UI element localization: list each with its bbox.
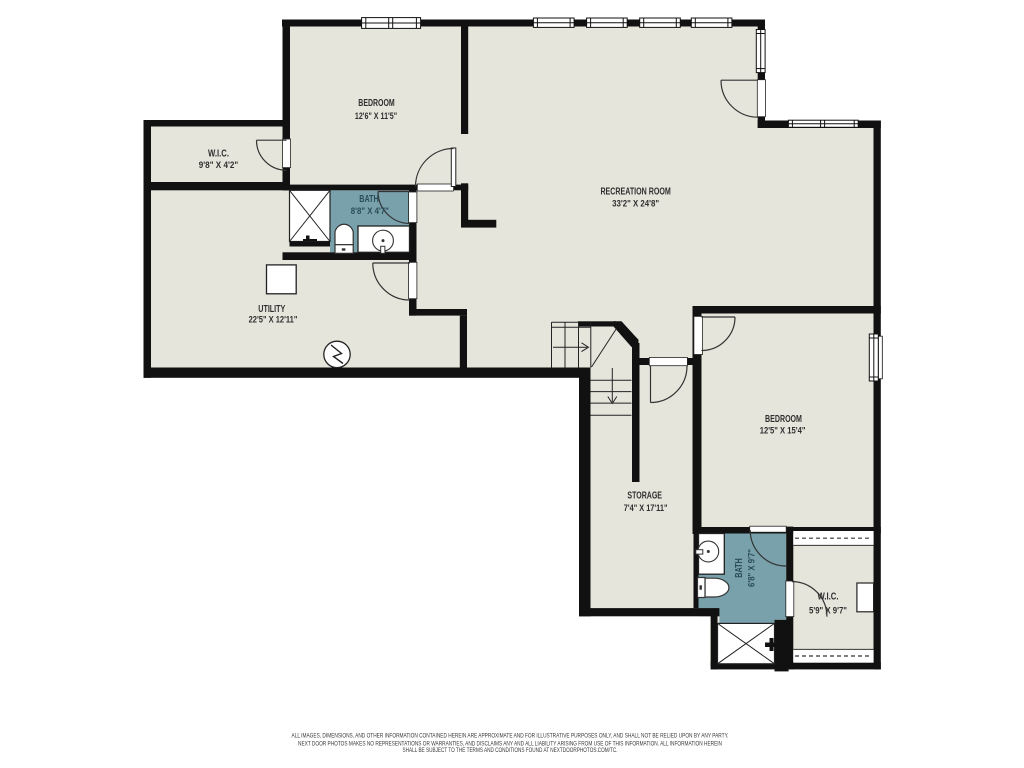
svg-text:6'8" X 9'7": 6'8" X 9'7" — [747, 549, 758, 587]
svg-text:33'2" X 24'8": 33'2" X 24'8" — [612, 198, 659, 209]
svg-text:W.I.C.: W.I.C. — [818, 592, 839, 603]
svg-text:8'8" X 4'7": 8'8" X 4'7" — [351, 206, 389, 217]
svg-text:22'5" X 12'11": 22'5" X 12'11" — [249, 315, 298, 326]
svg-text:9'8" X 4'2": 9'8" X 4'2" — [199, 160, 239, 171]
svg-text:SHALL BE SUBJECT TO THE TERMS: SHALL BE SUBJECT TO THE TERMS AND CONDIT… — [403, 747, 618, 754]
svg-text:5'9" X 9'7": 5'9" X 9'7" — [809, 606, 847, 617]
svg-text:12'6" X 11'5": 12'6" X 11'5" — [355, 111, 397, 122]
svg-text:12'5" X 15'4": 12'5" X 15'4" — [760, 425, 806, 436]
svg-text:UTILITY: UTILITY — [258, 304, 285, 315]
svg-text:RECREATION ROOM: RECREATION ROOM — [600, 187, 670, 198]
svg-text:7'4" X 17'11": 7'4" X 17'11" — [624, 503, 668, 514]
svg-text:BATH: BATH — [359, 194, 379, 205]
svg-text:W.I.C.: W.I.C. — [208, 149, 229, 160]
svg-text:ALL IMAGES, DIMENSIONS, AND OT: ALL IMAGES, DIMENSIONS, AND OTHER INFORM… — [292, 733, 729, 740]
svg-text:STORAGE: STORAGE — [627, 491, 662, 502]
svg-text:BATH: BATH — [734, 558, 745, 578]
svg-text:BEDROOM: BEDROOM — [358, 98, 394, 109]
svg-text:BEDROOM: BEDROOM — [765, 414, 802, 425]
